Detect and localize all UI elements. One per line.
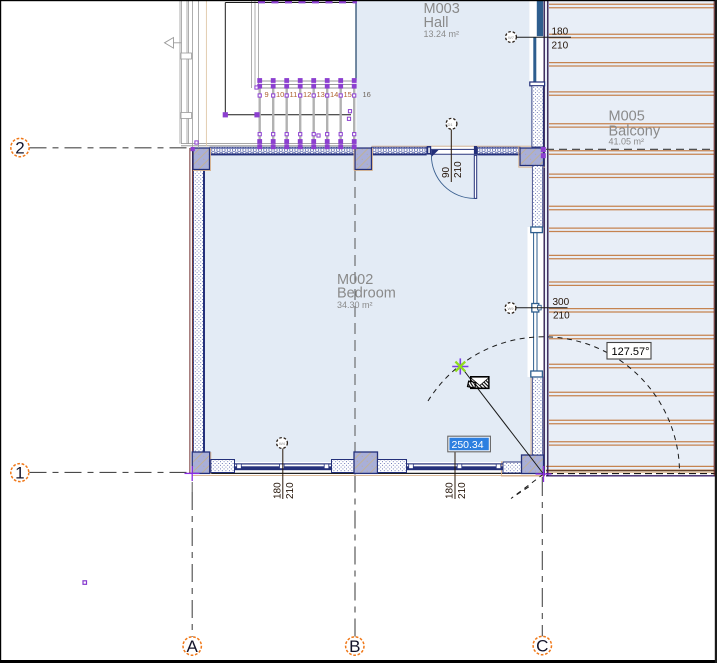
- svg-text:15: 15: [344, 90, 352, 99]
- svg-text:11: 11: [290, 90, 298, 99]
- svg-text:210: 210: [457, 482, 468, 499]
- svg-text:13: 13: [317, 90, 325, 99]
- svg-text:W7: W7: [508, 35, 515, 40]
- svg-text:1: 1: [15, 464, 24, 483]
- svg-text:180: 180: [445, 482, 456, 499]
- svg-text:210: 210: [285, 482, 296, 499]
- svg-text:300: 300: [553, 297, 570, 308]
- svg-text:210: 210: [553, 311, 570, 322]
- svg-text:D1: D1: [447, 122, 453, 127]
- svg-text:C: C: [536, 637, 548, 656]
- svg-text:250.34: 250.34: [452, 439, 484, 451]
- svg-text:A: A: [187, 637, 199, 656]
- svg-text:180: 180: [552, 27, 569, 38]
- svg-text:12: 12: [303, 90, 311, 99]
- svg-text:13.24 m²: 13.24 m²: [424, 29, 460, 39]
- svg-text:90: 90: [441, 166, 452, 178]
- svg-text:41.05 m²: 41.05 m²: [609, 137, 645, 147]
- svg-text:10: 10: [276, 90, 284, 99]
- svg-text:34.30 m²: 34.30 m²: [337, 300, 373, 310]
- svg-text:127.57°: 127.57°: [612, 346, 650, 358]
- svg-text:M005: M005: [609, 109, 645, 125]
- svg-text:2: 2: [15, 139, 24, 158]
- svg-text:180: 180: [272, 482, 283, 499]
- svg-text:W4: W4: [279, 441, 286, 446]
- svg-text:W9: W9: [508, 306, 515, 311]
- svg-text:9: 9: [265, 90, 269, 99]
- svg-text:210: 210: [453, 161, 464, 178]
- svg-text:210: 210: [552, 41, 569, 52]
- svg-text:16: 16: [363, 90, 371, 99]
- svg-text:14: 14: [330, 90, 338, 99]
- svg-text:B: B: [349, 637, 360, 656]
